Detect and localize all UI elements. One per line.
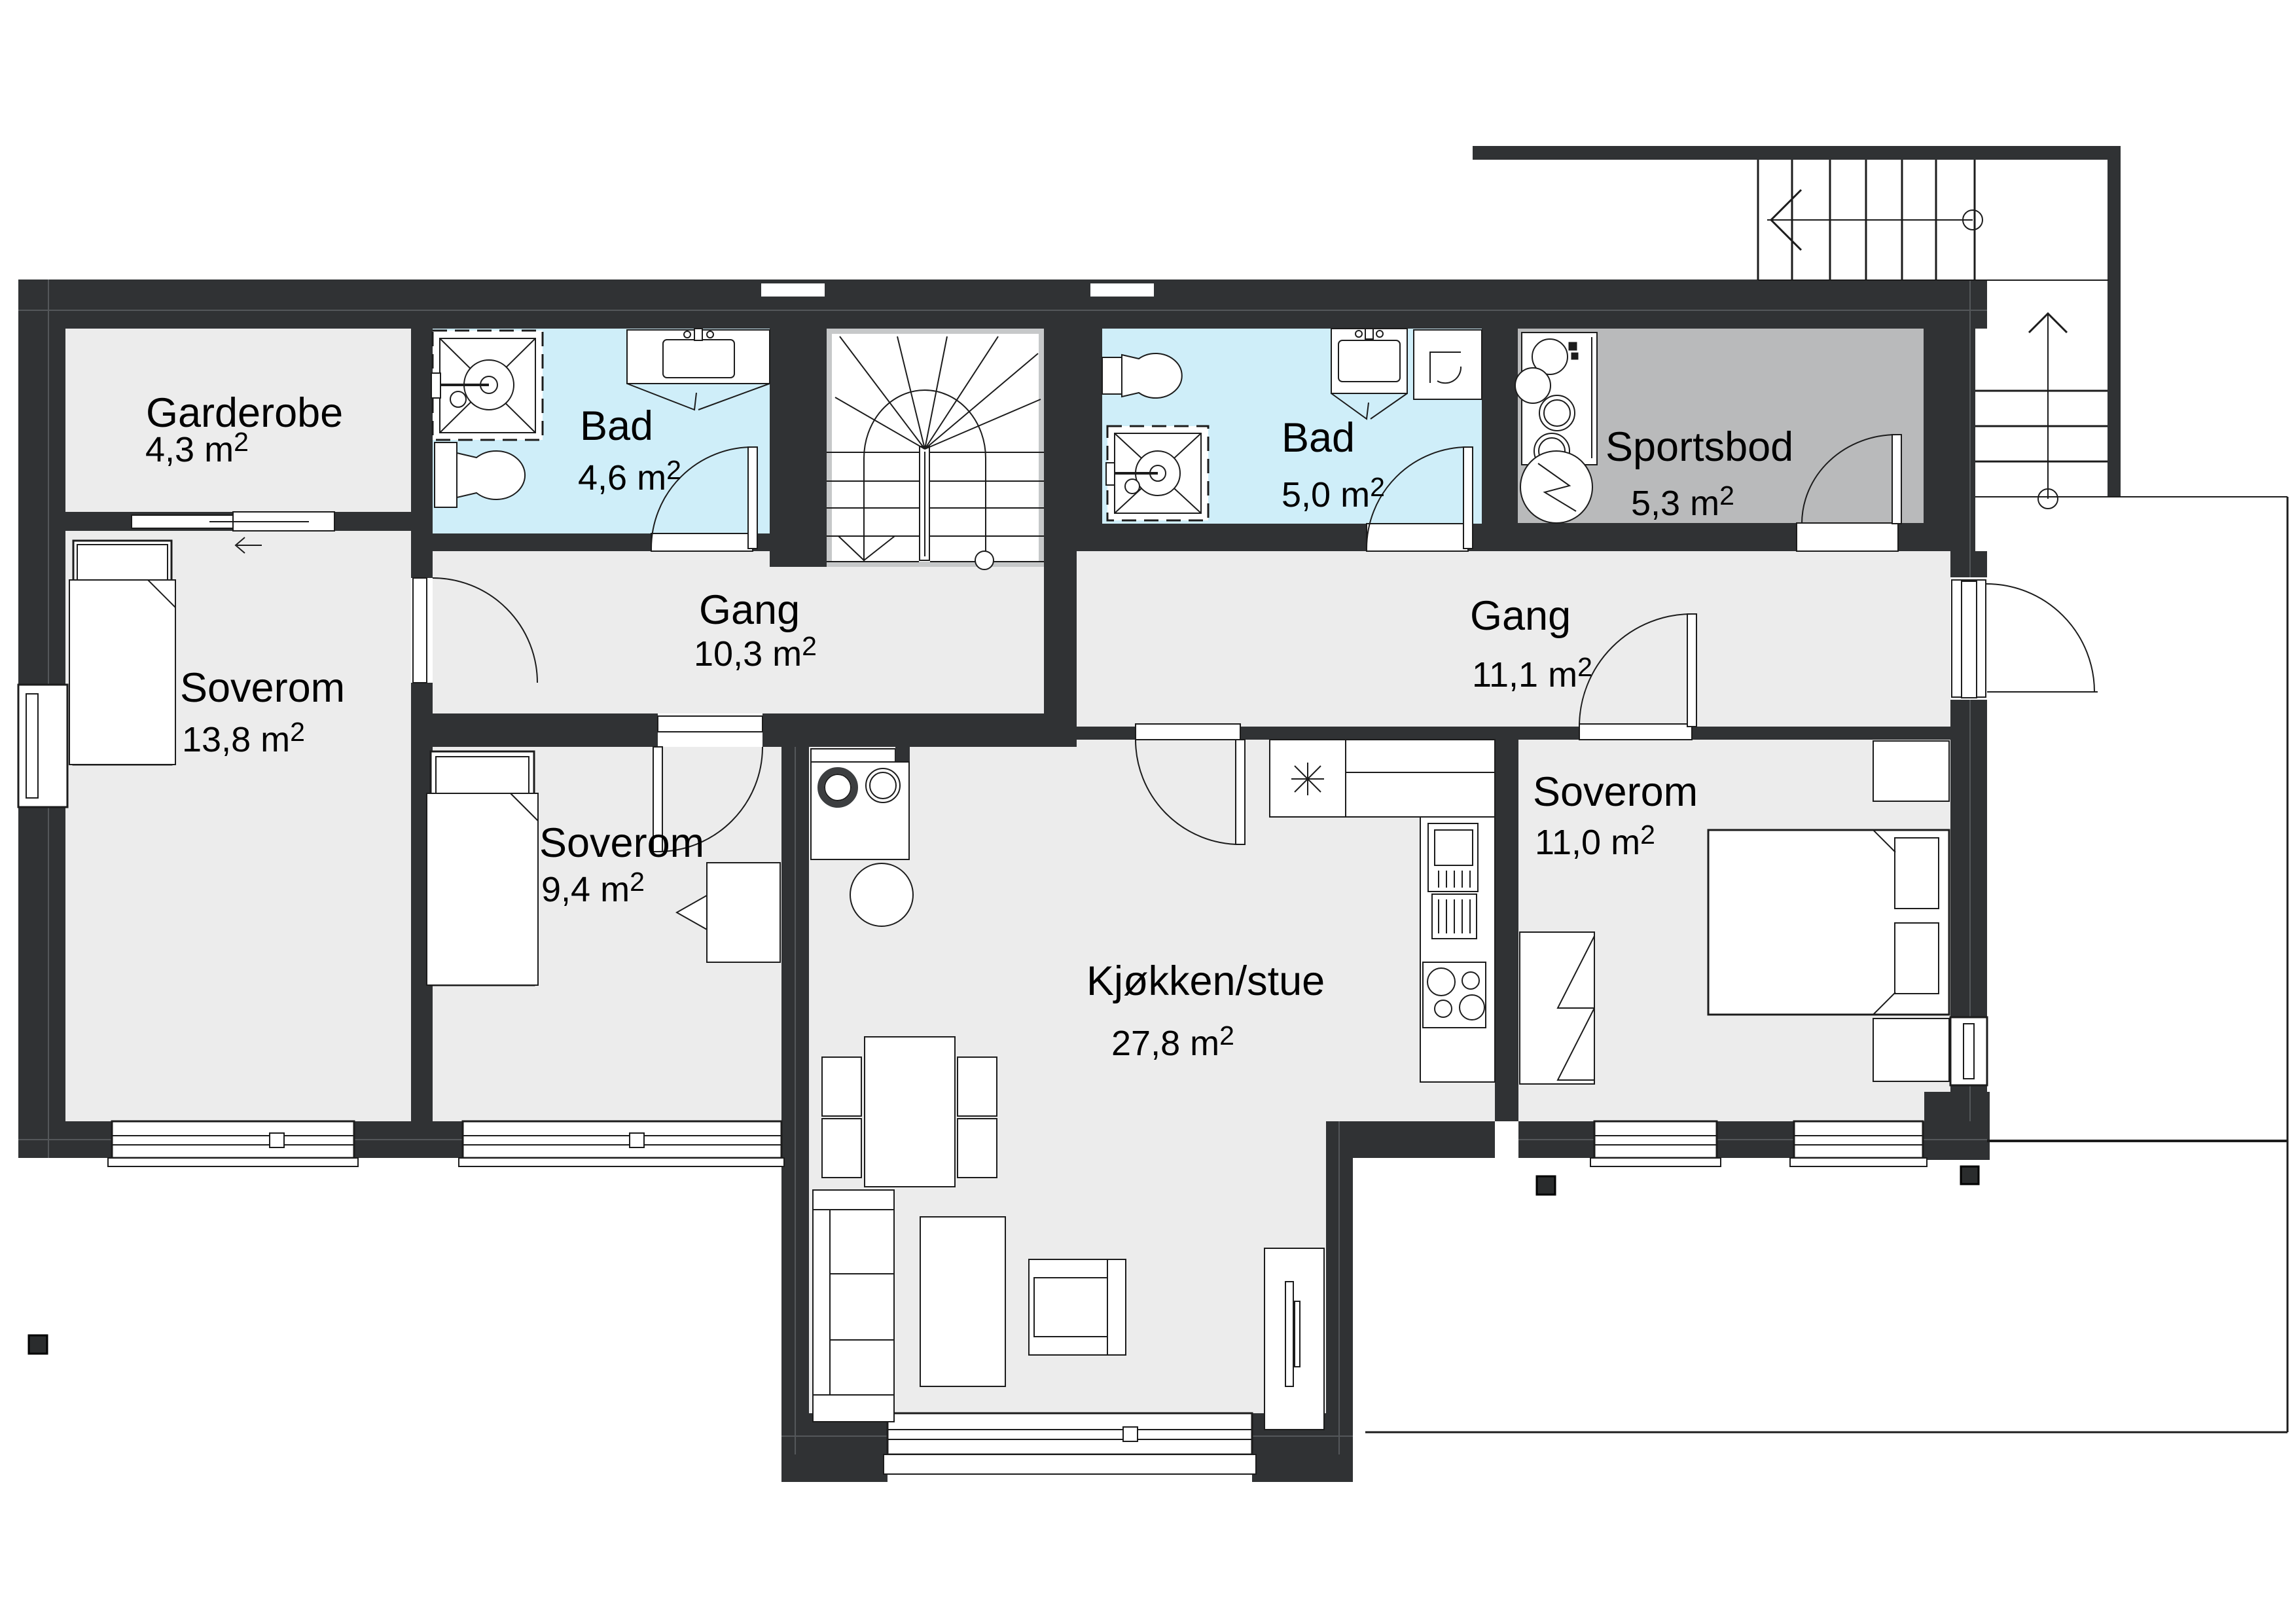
- svg-text:27,8 m2: 27,8 m2: [1111, 1020, 1234, 1063]
- svg-text:Sportsbod: Sportsbod: [1605, 424, 1793, 470]
- svg-text:Soverom: Soverom: [539, 820, 704, 866]
- svg-text:Soverom: Soverom: [180, 665, 345, 711]
- svg-text:13,8 m2: 13,8 m2: [182, 717, 305, 759]
- svg-text:9,4 m2: 9,4 m2: [541, 867, 645, 909]
- svg-text:Gang: Gang: [1470, 593, 1571, 639]
- svg-text:Bad: Bad: [1282, 415, 1355, 461]
- svg-text:Bad: Bad: [580, 403, 653, 449]
- svg-text:11,0 m2: 11,0 m2: [1535, 820, 1655, 862]
- svg-text:10,3 m2: 10,3 m2: [694, 631, 817, 674]
- svg-text:4,6 m2: 4,6 m2: [578, 455, 681, 497]
- svg-text:4,3 m2: 4,3 m2: [145, 427, 249, 469]
- svg-text:5,0 m2: 5,0 m2: [1282, 472, 1385, 514]
- svg-text:5,3 m2: 5,3 m2: [1631, 480, 1734, 523]
- svg-text:Soverom: Soverom: [1533, 769, 1698, 815]
- svg-text:11,1 m2: 11,1 m2: [1472, 652, 1592, 695]
- svg-text:Gang: Gang: [699, 587, 800, 633]
- svg-text:Kjøkken/stue: Kjøkken/stue: [1086, 958, 1325, 1004]
